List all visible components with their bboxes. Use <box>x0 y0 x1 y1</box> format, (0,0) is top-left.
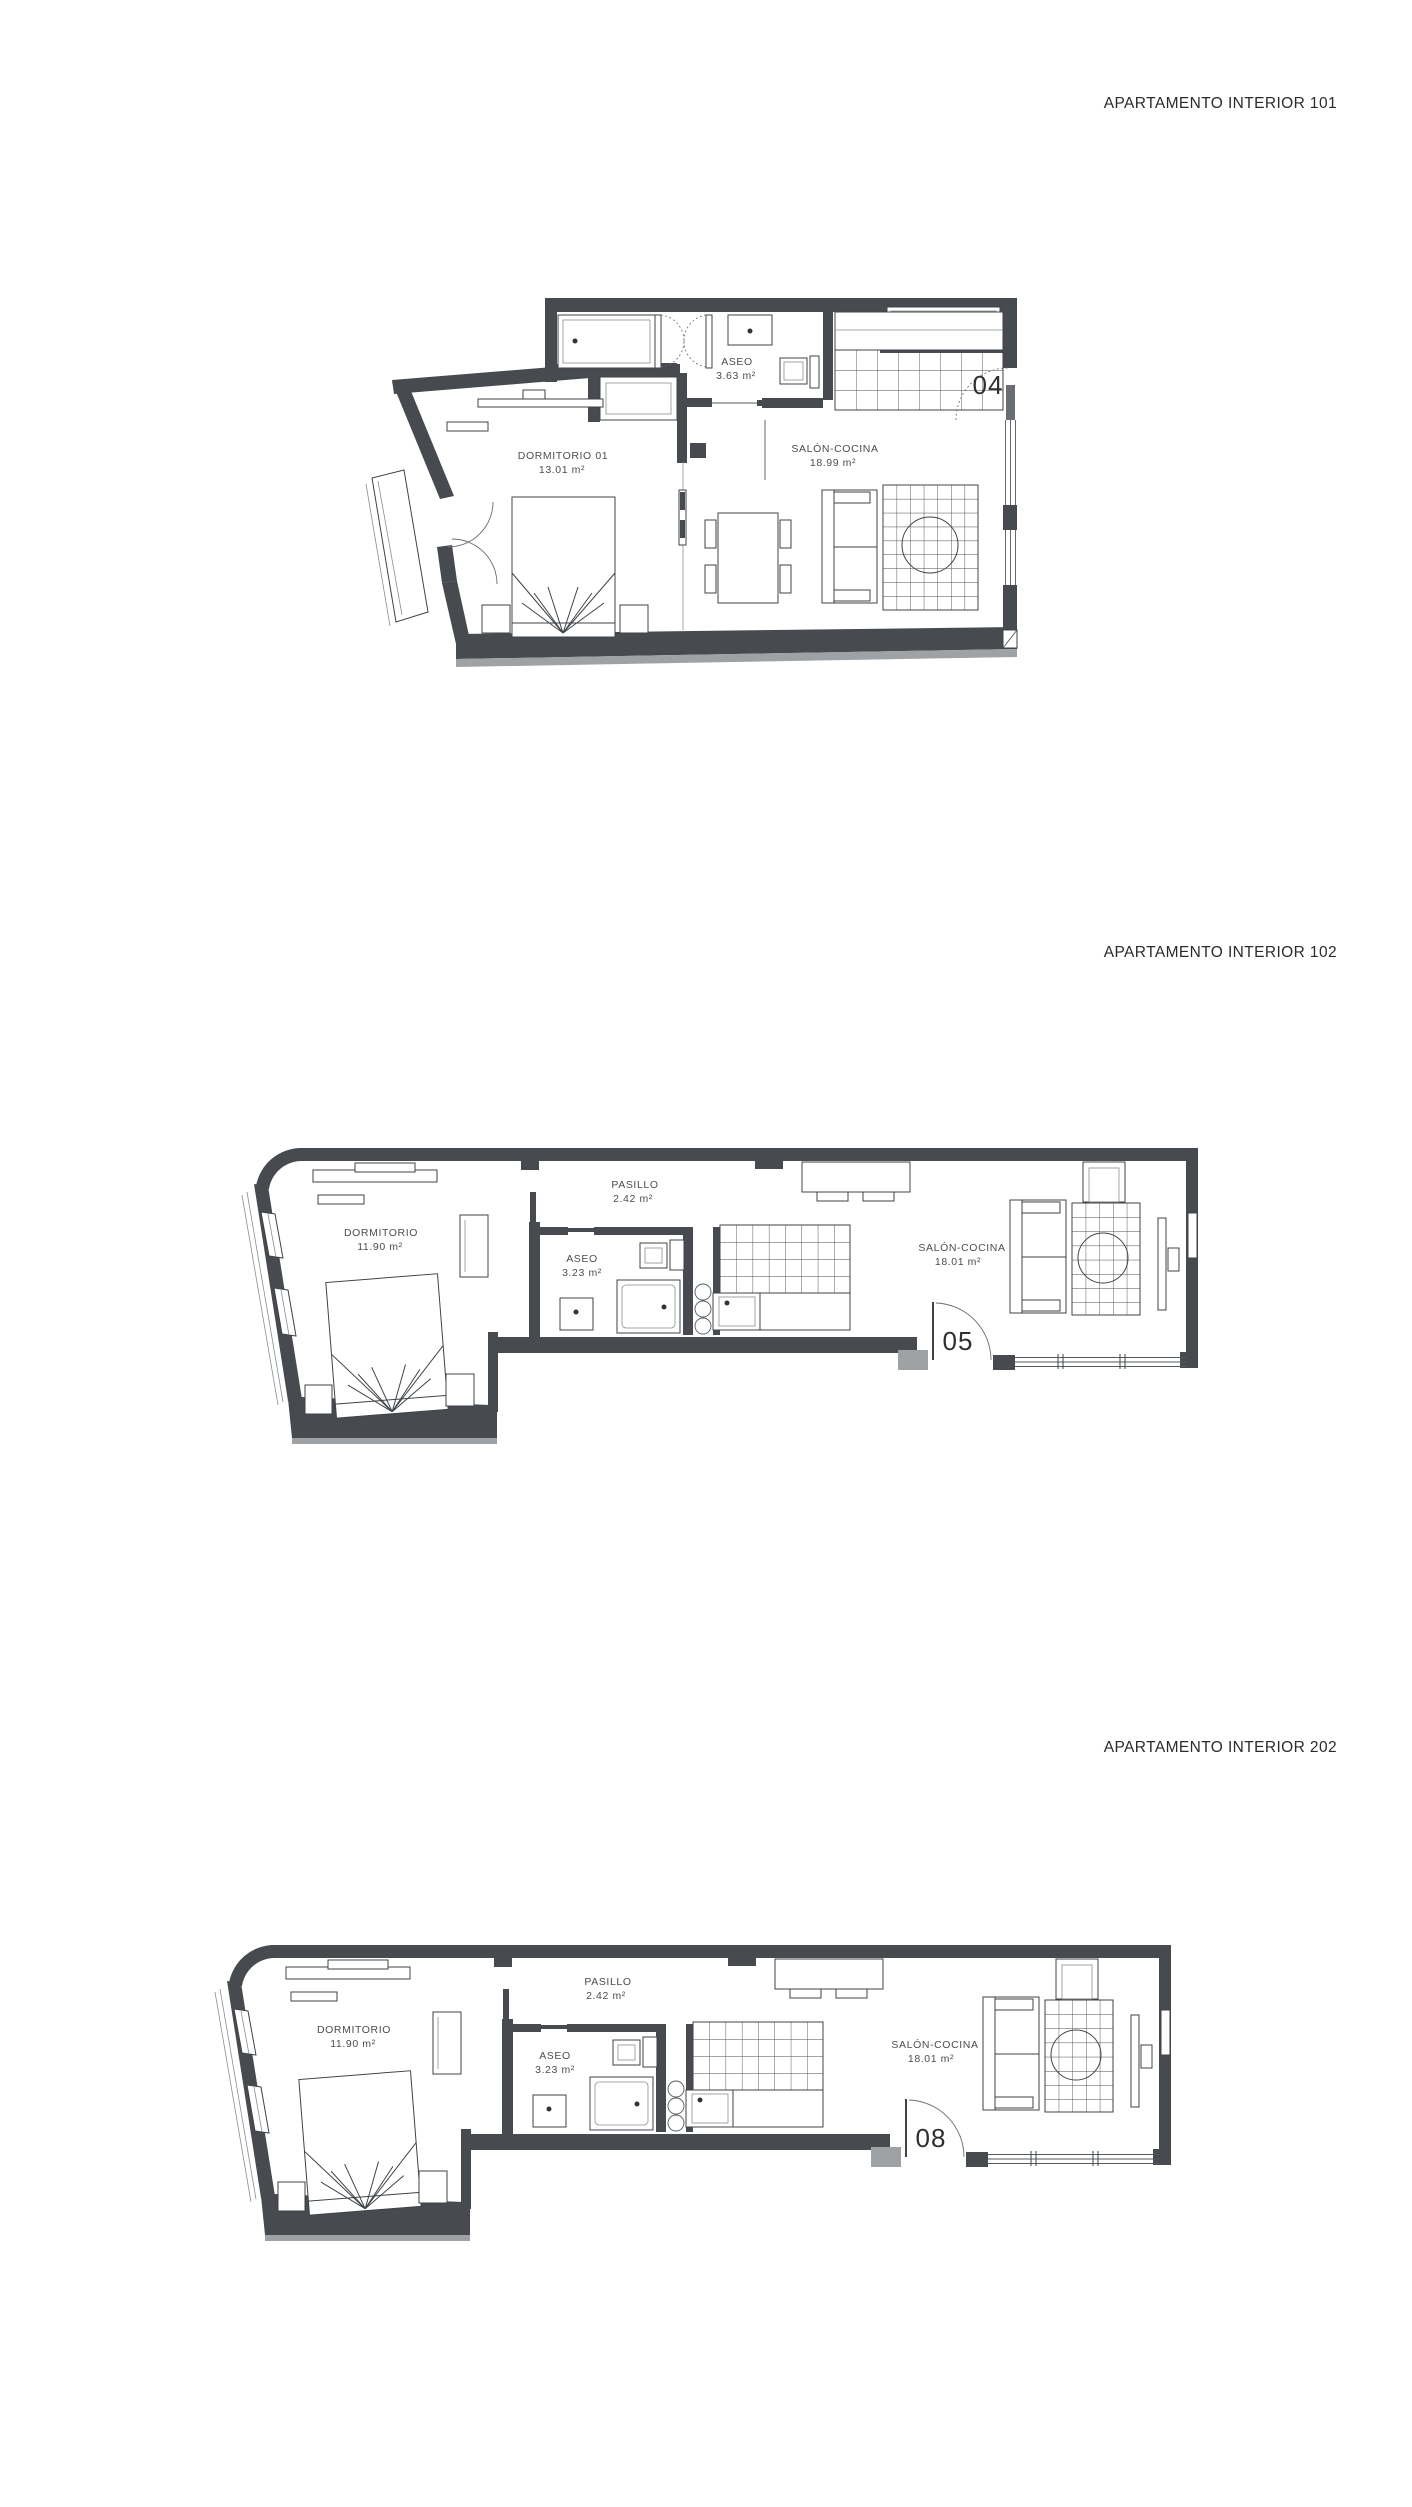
room-label-dormitorio: DORMITORIO <box>317 2024 391 2036</box>
room-label-pasillo: PASILLO <box>611 1179 658 1191</box>
toilet <box>780 356 819 388</box>
room-area-dormitorio: 11.90 m² <box>330 2038 375 2050</box>
floor-plan-101: DORMITORIO 01 13.01 m² ASEO 3.63 m² SALÓ… <box>360 290 1020 668</box>
plan-title-202: APARTAMENTO INTERIOR 202 <box>1104 1739 1337 1757</box>
door-number: 05 <box>943 1326 974 1356</box>
room-label-salon: SALÓN-COCINA <box>891 2038 978 2051</box>
room-label-aseo: ASEO <box>566 1253 598 1265</box>
room-area-salon: 18.01 m² <box>935 1256 981 1268</box>
balcony <box>366 470 428 626</box>
shower <box>558 315 712 368</box>
room-label-salon: SALÓN-COCINA <box>918 1241 1005 1254</box>
sofa <box>822 490 877 603</box>
room-label-aseo: ASEO <box>721 356 753 368</box>
plan-title-101: APARTAMENTO INTERIOR 101 <box>1104 95 1337 113</box>
floor-plan-202: DORMITORIO 11.90 m² PASILLO 2.42 m² ASEO… <box>208 1937 1178 2249</box>
floor-plan-sheet: APARTAMENTO INTERIOR 101 APARTAMENTO INT… <box>0 0 1412 2507</box>
aseo-door <box>712 400 762 406</box>
room-area-salon: 18.01 m² <box>908 2053 954 2065</box>
wardrobe <box>600 377 677 420</box>
room-label-aseo: ASEO <box>539 2050 571 2062</box>
room-area-aseo: 3.63 m² <box>716 370 756 382</box>
bedroom-door <box>679 462 686 630</box>
room-area-pasillo: 2.42 m² <box>586 1990 626 2002</box>
room-label-salon: SALÓN-COCINA <box>791 442 878 455</box>
rug <box>883 485 978 610</box>
room-area-aseo: 3.23 m² <box>535 2064 575 2076</box>
room-label-pasillo: PASILLO <box>584 1976 631 1988</box>
dining-table <box>705 513 791 603</box>
room-label-dormitorio: DORMITORIO <box>344 1227 418 1239</box>
room-area-pasillo: 2.42 m² <box>613 1193 653 1205</box>
plan-title-102: APARTAMENTO INTERIOR 102 <box>1104 944 1337 962</box>
desk <box>447 390 603 431</box>
room-area-dormitorio: 11.90 m² <box>357 1241 402 1253</box>
sink <box>728 315 772 345</box>
door-number: 04 <box>973 370 1004 400</box>
bed <box>482 497 648 637</box>
door-number: 08 <box>916 2123 947 2153</box>
room-area-aseo: 3.23 m² <box>562 1267 602 1279</box>
room-area-salon: 18.99 m² <box>810 457 856 469</box>
room-area-dormitorio: 13.01 m² <box>539 464 585 476</box>
room-label-dormitorio: DORMITORIO 01 <box>518 450 608 462</box>
floor-plan-102: DORMITORIO 11.90 m² PASILLO 2.42 m² ASEO… <box>235 1140 1205 1452</box>
